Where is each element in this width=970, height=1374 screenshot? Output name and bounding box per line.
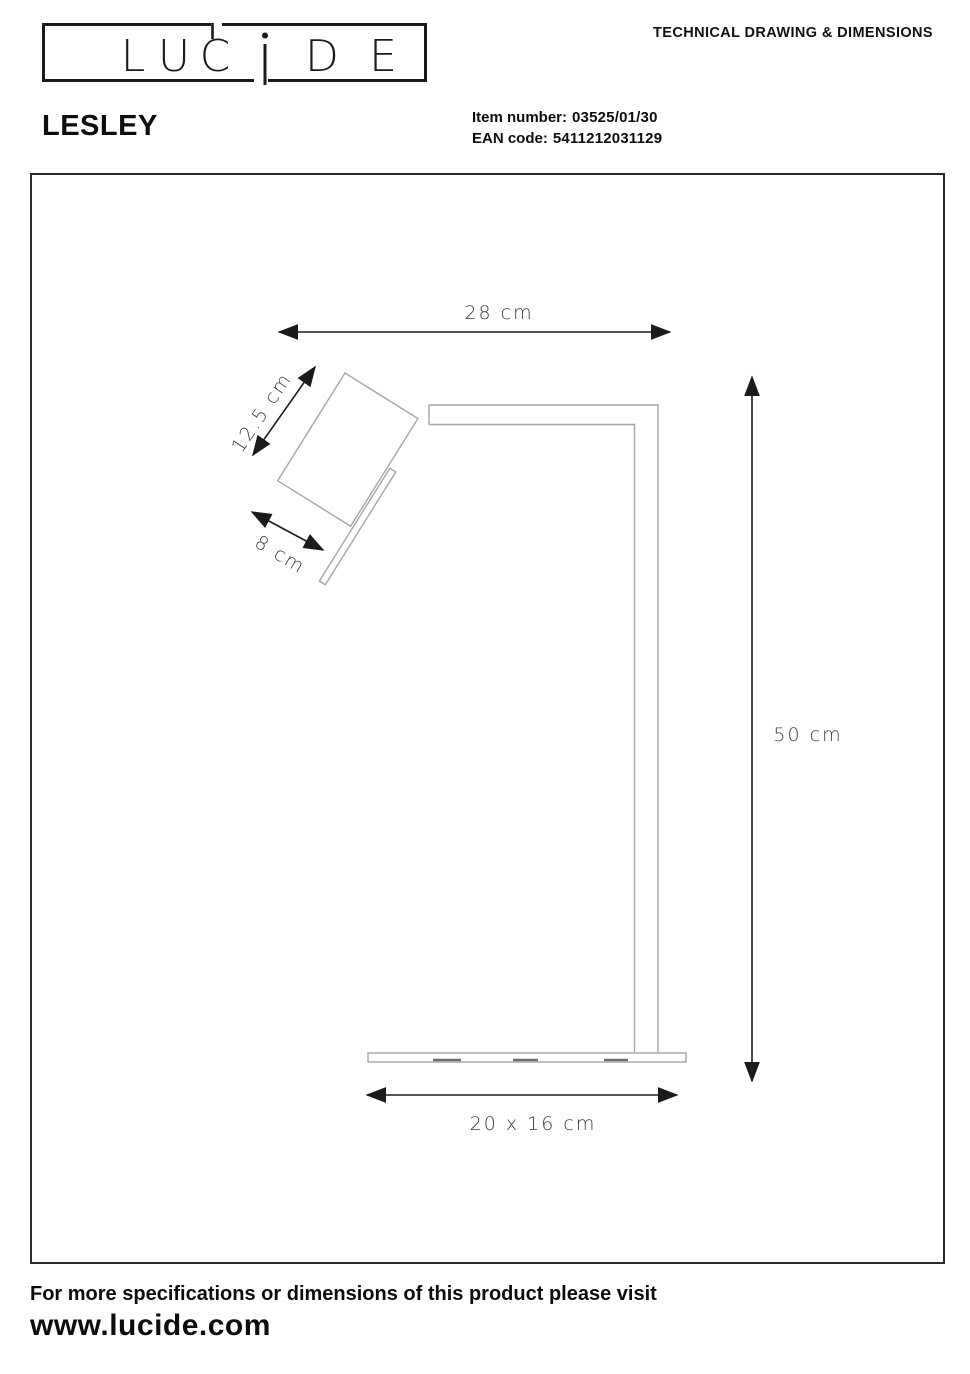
lucide-logo: L U C D E (40, 18, 440, 92)
dim-label-arm-reach: 28 cm (464, 302, 533, 324)
spec-sheet-page: { "header": { "doc_title": "TECHNICAL DR… (0, 0, 970, 1374)
logo-letter-d: D (305, 31, 339, 82)
ean-value: 5411212031129 (553, 130, 662, 147)
lamp-outline (244, 373, 686, 1062)
logo-letter-u: U (158, 31, 190, 82)
item-number-value: 03525/01/30 (572, 109, 658, 126)
dim-label-base: 20 x 16 cm (470, 1113, 597, 1135)
dim-label-height: 50 cm (773, 724, 842, 746)
document-title: TECHNICAL DRAWING & DIMENSIONS (653, 25, 933, 41)
ean-label: EAN code: (472, 130, 548, 147)
product-name: LESLEY (42, 110, 158, 143)
footer-note: For more specifications or dimensions of… (30, 1283, 657, 1306)
logo-letter-e: E (369, 31, 397, 82)
technical-drawing: 28 cm 12.5 cm 8 cm 50 cm 20 x 16 cm (30, 173, 945, 1264)
logo-letter-i-dot (262, 33, 268, 39)
lamp-head (278, 373, 418, 526)
item-number-label: Item number: (472, 109, 567, 126)
ean-row: EAN code:5411212031129 (472, 128, 662, 149)
logo-letter-l: L (121, 31, 146, 82)
item-number-row: Item number:03525/01/30 (472, 107, 662, 128)
logo-letter-c: C (200, 31, 231, 82)
lamp-arm-outer (429, 405, 658, 1053)
footer: For more specifications or dimensions of… (30, 1283, 657, 1343)
footer-website-link[interactable]: www.lucide.com (30, 1309, 657, 1343)
product-codes: Item number:03525/01/30 EAN code:5411212… (472, 107, 662, 149)
lamp-arm-inner (429, 425, 635, 1054)
